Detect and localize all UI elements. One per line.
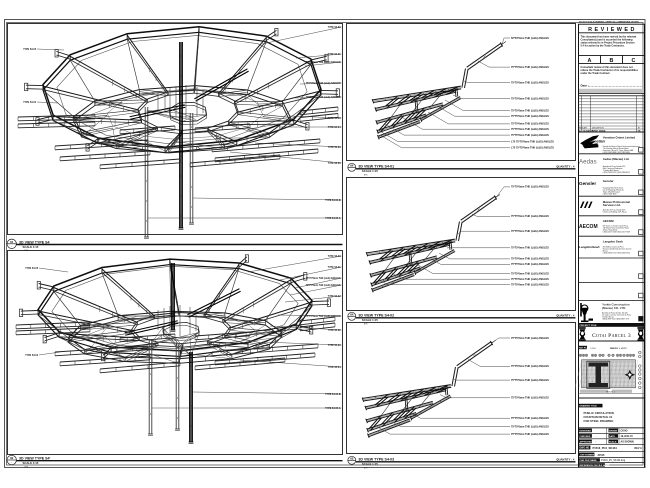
- svg-text:QUANTITY : 4: QUANTITY : 4: [556, 165, 575, 169]
- svg-text:FOR STEEL DRAWING: FOR STEEL DRAWING: [584, 419, 614, 423]
- svg-text:China Law Building 21/F, Macau: China Law Building 21/F, Macau: [603, 211, 627, 213]
- svg-text:Date :: Date :: [581, 84, 589, 88]
- svg-text:t (853) 2882 8888 f (853) 28: t (853) 2882 8888 f (853) 2882 8889: [603, 151, 630, 154]
- svg-text:TYPE S4-03: TYPE S4-03: [23, 48, 36, 51]
- svg-text:3D VIEW TYPE S4-01: 3D VIEW TYPE S4-01: [358, 165, 394, 169]
- svg-text:SCALE: SCALE: [609, 441, 617, 444]
- svg-text:Langdon Seah: Langdon Seah: [603, 239, 623, 243]
- svg-text:75*75*6mm THK (L&G) ANGLES: 75*75*6mm THK (L&G) ANGLES: [511, 115, 549, 118]
- svg-text:75*75*6mm THK (L&G) ANGLES: 75*75*6mm THK (L&G) ANGLES: [306, 96, 341, 99]
- svg-text:75*75*6mm THK (L&G) ANGLES: 75*75*6mm THK (L&G) ANGLES: [511, 66, 549, 69]
- svg-text:75*75*6mm THK (L&G) ANGLES: 75*75*6mm THK (L&G) ANGLES: [511, 109, 549, 112]
- svg-text:AECOM: AECOM: [603, 219, 614, 223]
- svg-text:SCALE 1:15: SCALE 1:15: [23, 245, 39, 249]
- svg-text:75*75*6mm THK (L&G) ANGLES: 75*75*6mm THK (L&G) ANGLES: [511, 128, 549, 131]
- svg-text:TYPE S4-05-B: TYPE S4-05-B: [325, 199, 341, 202]
- svg-text:MACAO: MACAO: [592, 144, 599, 147]
- svg-text:75*75*6mm THK (L&G) ANGLES: 75*75*6mm THK (L&G) ANGLES: [511, 123, 549, 126]
- svg-text:-: -: [11, 461, 12, 464]
- svg-text:Aedas: Aedas: [579, 158, 597, 165]
- svg-text:75*75*6mm THK (L&G) ANGLES: 75*75*6mm THK (L&G) ANGLES: [511, 215, 549, 218]
- svg-text:DRAWN: DRAWN: [609, 430, 618, 433]
- svg-text:t (853) 2837 5553 f (853) 283: t (853) 2837 5553 f (853) 2837 5773: [602, 317, 629, 320]
- svg-text:Venetian: Venetian: [590, 140, 606, 144]
- svg-text:75*75*6mm THK (L&G) ANGLES: 75*75*6mm THK (L&G) ANGLES: [511, 258, 549, 261]
- svg-text:19-AUG-15: 19-AUG-15: [621, 435, 634, 438]
- svg-text:APPROVED: APPROVED: [580, 441, 593, 444]
- svg-text:AECOM: AECOM: [579, 224, 598, 230]
- svg-text:DRAWING TITLE: DRAWING TITLE: [580, 405, 598, 408]
- svg-text:Aedas (Macau) Ltd.: Aedas (Macau) Ltd.: [603, 157, 630, 161]
- svg-text:Gensler: Gensler: [603, 179, 615, 183]
- svg-text:Services Ltd.: Services Ltd.: [603, 203, 621, 207]
- svg-text:-: -: [596, 442, 597, 444]
- svg-text:31516: 31516: [598, 454, 606, 457]
- svg-text:REFERENCE ON FILE NAME: REFERENCE ON FILE NAME: [580, 464, 610, 467]
- svg-text:CKAO: CKAO: [621, 430, 628, 433]
- svg-text:75*75*6mm THK (L&G) ANGLES: 75*75*6mm THK (L&G) ANGLES: [511, 273, 549, 276]
- svg-text:C: C: [632, 58, 636, 64]
- svg-text:75*75*6mm THK (L&G) ANGLES: 75*75*6mm THK (L&G) ANGLES: [511, 230, 549, 233]
- svg-text:t (853) 2833 1710 f (853) 283: t (853) 2833 1710 f (853) 2833 1532: [603, 252, 630, 255]
- svg-text:TYPE S4-05-B: TYPE S4-05-B: [325, 393, 341, 396]
- svg-text:TYPE S4-01: TYPE S4-01: [328, 266, 341, 269]
- svg-text:75*75*6mm THK (L&G) ANGLES: 75*75*6mm THK (L&G) ANGLES: [511, 397, 549, 400]
- svg-text:L75 75*75*6mm THK (L&G) ANGLES: L75 75*75*6mm THK (L&G) ANGLES: [511, 147, 554, 150]
- svg-text:QUANTITY : 4: QUANTITY : 4: [556, 314, 575, 318]
- svg-text:1:2500: 1:2500: [590, 348, 596, 350]
- svg-text:P1516_PC2_SK434: P1516_PC2_SK434: [593, 446, 618, 450]
- svg-text:t (853) 2833 1022 f (853) 283: t (853) 2833 1022 f (853) 2833 0911: [603, 171, 630, 174]
- svg-text:3D VIEW TYPE S4': 3D VIEW TYPE S4': [19, 457, 51, 461]
- svg-text:P1516_PC_SK434.dwg: P1516_PC_SK434.dwg: [601, 460, 626, 462]
- svg-text:Venetian Orient Limited: Venetian Orient Limited: [603, 135, 636, 139]
- svg-text:3D VIEW TYPE S4-03: 3D VIEW TYPE S4-03: [358, 458, 394, 462]
- svg-text:SCALE 1:15: SCALE 1:15: [23, 461, 39, 465]
- svg-text:75*75*6mm THK (L&G) ANGLES: 75*75*6mm THK (L&G) ANGLES: [511, 98, 549, 101]
- svg-text:SCALE 1:15: SCALE 1:15: [362, 462, 378, 466]
- svg-text:DO NOT SCALE DRAWING. VERIFY A: DO NOT SCALE DRAWING. VERIFY ALL DIMENSI…: [579, 20, 639, 23]
- svg-text:TYPE S4-05-A: TYPE S4-05-A: [325, 407, 341, 410]
- svg-text:DATE: DATE: [609, 435, 615, 438]
- svg-text:3D VIEW TYPE S4: 3D VIEW TYPE S4: [19, 240, 50, 244]
- svg-text:TYPE S4-03: TYPE S4-03: [328, 146, 341, 149]
- svg-text:3D VIEW TYPE S4-02: 3D VIEW TYPE S4-02: [358, 314, 394, 318]
- svg-text:QUANTITY : 4: QUANTITY : 4: [556, 458, 575, 462]
- svg-text:NTS: NTS: [364, 174, 368, 176]
- svg-text:TYPE S4-03: TYPE S4-03: [25, 267, 38, 270]
- svg-text:TYPE S4-03: TYPE S4-03: [328, 117, 341, 120]
- svg-text:L75 75*75*6mm THK (L&G) ANGLES: L75 75*75*6mm THK (L&G) ANGLES: [511, 140, 554, 143]
- svg-text:t (81) 3 6406 8500: t (81) 3 6406 8500: [603, 192, 617, 195]
- svg-text:CAD FILE NAME: CAD FILE NAME: [580, 459, 598, 462]
- svg-text:75*75*6mm THK (L&G) ANGLES: 75*75*6mm THK (L&G) ANGLES: [511, 247, 549, 250]
- svg-text:75*75*6mm THK (L&G) ANGLES: 75*75*6mm THK (L&G) ANGLES: [511, 186, 549, 189]
- svg-text:04: 04: [350, 164, 354, 168]
- svg-text:PARCEL 1, LOT 2: PARCEL 1, LOT 2: [610, 347, 627, 350]
- svg-text:75*75*6mm THK (L&G) ANGLES: 75*75*6mm THK (L&G) ANGLES: [511, 263, 549, 266]
- svg-text:Gensler: Gensler: [579, 181, 596, 186]
- svg-text:REV A: REV A: [635, 447, 642, 450]
- svg-text:75*75*6mm THK (L&G) ANGLES: 75*75*6mm THK (L&G) ANGLES: [511, 284, 549, 287]
- svg-text:TYPE S4-02: TYPE S4-02: [23, 101, 36, 104]
- svg-text:75*75*6mm THK (L&G) ANGLES: 75*75*6mm THK (L&G) ANGLES: [511, 365, 549, 368]
- svg-text:SCALE 1:15: SCALE 1:15: [362, 169, 378, 173]
- svg-text:75*75*6mm THK (L&G) ANGLES: 75*75*6mm THK (L&G) ANGLES: [511, 426, 549, 429]
- svg-text:JOB NUMBER: JOB NUMBER: [580, 455, 595, 457]
- svg-text:75*75*6mm THK (L&G) ANGLES: 75*75*6mm THK (L&G) ANGLES: [511, 433, 549, 436]
- svg-text:-: -: [351, 462, 352, 465]
- svg-text:TYPE S4-03: TYPE S4-03: [328, 344, 341, 347]
- svg-text:75*75*6mm THK (L&G) ANGLES: 75*75*6mm THK (L&G) ANGLES: [306, 61, 341, 64]
- svg-text:B: B: [610, 58, 614, 64]
- svg-text:-: -: [351, 318, 352, 321]
- svg-text:DESCRIPTION: DESCRIPTION: [592, 128, 604, 130]
- svg-text:CHECKED: CHECKED: [580, 436, 591, 438]
- svg-text:TYPE S4-05-A: TYPE S4-05-A: [325, 217, 341, 220]
- svg-text:t (852) 2317 7000 f (852) 231: t (852) 2317 7000 f (852) 2317 7609: [603, 231, 630, 234]
- svg-text:Cotai Parcel 3: Cotai Parcel 3: [592, 333, 631, 339]
- svg-text:SCALE 1:15: SCALE 1:15: [362, 318, 378, 322]
- svg-text:75*75*6mm THK (L&G) ANGLES: 75*75*6mm THK (L&G) ANGLES: [511, 81, 549, 84]
- svg-text:TYPE S4-01: TYPE S4-01: [328, 53, 341, 56]
- svg-text:DESIGNED: DESIGNED: [580, 431, 592, 433]
- svg-text:75*75*6mm THK (L&G) ANGLES: 75*75*6mm THK (L&G) ANGLES: [511, 134, 549, 137]
- svg-text:75*75*6mm THK (L&G) ANGLES: 75*75*6mm THK (L&G) ANGLES: [511, 337, 549, 340]
- svg-text:5.4 for action by the Trade Co: 5.4 for action by the Trade Contractor.: [581, 44, 625, 47]
- svg-text:75*75*6mm THK (L&G) ANGLES: 75*75*6mm THK (L&G) ANGLES: [306, 284, 341, 287]
- svg-text:75*75*6mm THK (L&G) ANGLES: 75*75*6mm THK (L&G) ANGLES: [306, 277, 341, 280]
- svg-text:TYPE S4-03: TYPE S4-03: [328, 26, 341, 29]
- svg-text:TYPE S4-04: TYPE S4-04: [328, 366, 341, 369]
- svg-text:01: 01: [10, 240, 14, 244]
- svg-text:PARCEL 2: PARCEL 2: [606, 390, 615, 393]
- svg-text:50*50*6mm THK (L&G) ANGLES: 50*50*6mm THK (L&G) ANGLES: [511, 37, 549, 40]
- svg-text:-: -: [596, 436, 597, 438]
- svg-text:TYPE S4-03: TYPE S4-03: [328, 255, 341, 258]
- svg-text:R E V I E W E D: R E V I E W E D: [588, 27, 635, 33]
- svg-text:-: -: [351, 169, 352, 172]
- svg-text:DWG NO: DWG NO: [580, 448, 590, 450]
- svg-text:02: 02: [10, 456, 14, 460]
- svg-text:04: 04: [350, 313, 354, 317]
- svg-text:NTS: NTS: [364, 323, 368, 325]
- svg-text:under the Trade Contract.: under the Trade Contract.: [581, 72, 611, 75]
- svg-text:A: A: [588, 58, 592, 64]
- svg-text:05: 05: [350, 457, 354, 461]
- svg-text:75*75*6mm THK (L&G) ANGLES: 75*75*6mm THK (L&G) ANGLES: [511, 417, 549, 420]
- svg-text:(Macau) CO. LTD.: (Macau) CO. LTD.: [602, 306, 626, 310]
- svg-text:75*75*6mm THK (L&G) ANGLES: 75*75*6mm THK (L&G) ANGLES: [306, 82, 341, 85]
- svg-text:75*75*6mm THK (L&G) ANGLES: 75*75*6mm THK (L&G) ANGLES: [511, 379, 549, 382]
- svg-text:LangdonSeah: LangdonSeah: [579, 245, 600, 249]
- svg-text:KEY PLAN: KEY PLAN: [579, 347, 590, 350]
- svg-text:AS SHOWN: AS SHOWN: [621, 441, 634, 444]
- svg-text:TYPE S4-02: TYPE S4-02: [328, 295, 341, 298]
- svg-text:TYPE S4-04: TYPE S4-04: [328, 126, 341, 129]
- svg-text:TYPE S4-06: TYPE S4-06: [328, 162, 341, 165]
- svg-text:-: -: [11, 245, 12, 248]
- svg-text:TYPE S4-02: TYPE S4-02: [25, 354, 38, 357]
- svg-text:TYPE S4-02: TYPE S4-02: [328, 329, 341, 332]
- svg-text:75*75*6mm THK (L&G) ANGLES: 75*75*6mm THK (L&G) ANGLES: [306, 315, 341, 318]
- svg-text:75*75*6mm THK (L&G) ANGLES: 75*75*6mm THK (L&G) ANGLES: [511, 278, 549, 281]
